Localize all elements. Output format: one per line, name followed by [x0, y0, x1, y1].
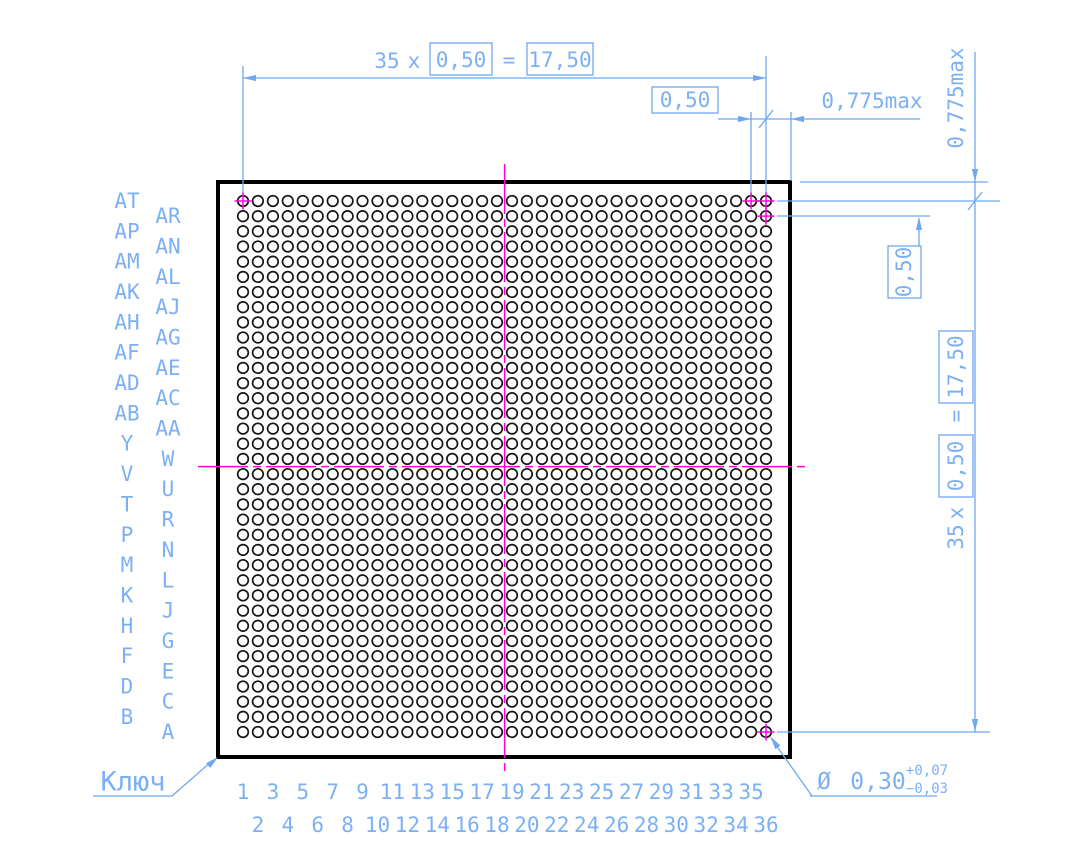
pad — [731, 272, 742, 283]
pad — [611, 605, 622, 616]
pad — [283, 575, 294, 586]
pad — [522, 423, 533, 434]
pad — [566, 438, 577, 449]
pad — [492, 590, 503, 601]
pad — [701, 393, 712, 404]
pad — [283, 272, 294, 283]
pad — [357, 226, 368, 237]
pad — [312, 287, 323, 298]
row-label: J — [162, 599, 175, 623]
pad — [731, 484, 742, 495]
pad — [312, 302, 323, 313]
pad — [596, 438, 607, 449]
row-label: AN — [155, 235, 180, 259]
pad — [357, 605, 368, 616]
pad — [671, 530, 682, 541]
pad — [238, 272, 249, 283]
pad — [462, 666, 473, 677]
pad — [641, 272, 652, 283]
pad — [701, 378, 712, 389]
col-label: 7 — [326, 780, 339, 804]
pad — [372, 696, 383, 707]
pad — [537, 393, 548, 404]
pad — [507, 651, 518, 662]
pad — [327, 727, 338, 738]
row-label: AE — [155, 356, 180, 380]
pad — [357, 256, 368, 267]
pad — [238, 226, 249, 237]
pad — [671, 408, 682, 419]
pad — [656, 302, 667, 313]
pad — [552, 226, 563, 237]
pad — [537, 256, 548, 267]
pad — [477, 727, 488, 738]
pad — [686, 651, 697, 662]
pad — [298, 256, 309, 267]
pad — [656, 272, 667, 283]
pad — [611, 499, 622, 510]
pad — [656, 590, 667, 601]
col-label: 1 — [237, 780, 250, 804]
pad — [507, 196, 518, 207]
pad — [298, 317, 309, 328]
pad — [312, 484, 323, 495]
pad — [566, 681, 577, 692]
pad — [253, 454, 264, 465]
pad — [761, 347, 772, 358]
pad — [626, 226, 637, 237]
pad — [746, 696, 757, 707]
pad — [387, 499, 398, 510]
pad — [507, 575, 518, 586]
pad — [432, 514, 443, 525]
pad — [656, 621, 667, 632]
pad — [417, 363, 428, 374]
h-gap-value: 0,50 — [660, 88, 711, 112]
pad — [566, 363, 577, 374]
pad — [656, 605, 667, 616]
pad — [312, 636, 323, 647]
pad — [701, 226, 712, 237]
pad — [731, 363, 742, 374]
pad — [507, 666, 518, 677]
pad — [626, 712, 637, 723]
pad — [283, 256, 294, 267]
col-label: 4 — [281, 813, 294, 837]
pad — [701, 287, 712, 298]
pad — [671, 241, 682, 252]
pad — [342, 287, 353, 298]
pad — [581, 332, 592, 343]
pad — [656, 499, 667, 510]
pad — [238, 484, 249, 495]
pad — [477, 438, 488, 449]
pad — [611, 621, 622, 632]
pad — [253, 696, 264, 707]
pad — [656, 696, 667, 707]
pad — [566, 196, 577, 207]
pad — [581, 363, 592, 374]
pad — [686, 347, 697, 358]
pad — [611, 287, 622, 298]
pad — [417, 408, 428, 419]
pad — [686, 454, 697, 465]
pad — [238, 408, 249, 419]
pad — [312, 454, 323, 465]
pad — [268, 454, 279, 465]
pad — [701, 499, 712, 510]
pad — [298, 530, 309, 541]
pad — [372, 378, 383, 389]
pad — [327, 666, 338, 677]
pad — [372, 423, 383, 434]
pad — [253, 408, 264, 419]
pad — [327, 681, 338, 692]
pad — [641, 605, 652, 616]
pad — [746, 226, 757, 237]
pad — [716, 636, 727, 647]
pad — [253, 590, 264, 601]
pad — [342, 651, 353, 662]
pad — [656, 332, 667, 343]
pad — [581, 438, 592, 449]
pad — [268, 530, 279, 541]
pad — [686, 332, 697, 343]
col-label: 12 — [395, 813, 420, 837]
pad — [761, 378, 772, 389]
pad — [656, 408, 667, 419]
pad — [432, 696, 443, 707]
pad — [522, 727, 533, 738]
pad — [671, 378, 682, 389]
pad — [402, 226, 413, 237]
pad — [552, 545, 563, 556]
pad — [596, 347, 607, 358]
pad — [626, 211, 637, 222]
pad — [268, 712, 279, 723]
pad — [447, 408, 458, 419]
pad — [746, 287, 757, 298]
pad — [596, 317, 607, 328]
pad — [761, 363, 772, 374]
pad — [537, 621, 548, 632]
pad — [312, 393, 323, 404]
pad — [432, 605, 443, 616]
pad — [626, 681, 637, 692]
col-label: 28 — [634, 813, 659, 837]
pad — [327, 621, 338, 632]
pad — [522, 575, 533, 586]
pad — [312, 499, 323, 510]
pad — [432, 256, 443, 267]
pad — [552, 393, 563, 404]
pad — [462, 575, 473, 586]
pad — [342, 347, 353, 358]
pad — [357, 196, 368, 207]
pad — [581, 636, 592, 647]
pad — [507, 621, 518, 632]
pad — [507, 256, 518, 267]
pad — [626, 332, 637, 343]
pad — [761, 545, 772, 556]
pad — [641, 712, 652, 723]
pad — [522, 560, 533, 571]
pad — [268, 302, 279, 313]
row-label: AC — [155, 386, 180, 410]
pad — [417, 469, 428, 480]
pad — [656, 287, 667, 298]
pad — [298, 469, 309, 480]
pad — [656, 530, 667, 541]
pad — [447, 666, 458, 677]
pad — [731, 514, 742, 525]
pad — [566, 317, 577, 328]
pad — [253, 196, 264, 207]
pad — [447, 696, 458, 707]
pad — [507, 226, 518, 237]
pad — [238, 211, 249, 222]
row-label: AT — [114, 189, 140, 213]
pad — [298, 636, 309, 647]
pad — [447, 621, 458, 632]
pad — [417, 317, 428, 328]
pad — [522, 530, 533, 541]
pad — [507, 332, 518, 343]
pad — [432, 499, 443, 510]
pad — [596, 727, 607, 738]
pad — [716, 256, 727, 267]
pad — [268, 287, 279, 298]
pad — [342, 636, 353, 647]
pad — [432, 211, 443, 222]
pad — [671, 681, 682, 692]
pad — [477, 347, 488, 358]
pad — [611, 514, 622, 525]
pad — [671, 636, 682, 647]
pad — [283, 317, 294, 328]
pad — [462, 651, 473, 662]
pad — [462, 621, 473, 632]
pad — [552, 727, 563, 738]
pad — [626, 438, 637, 449]
row-label: AJ — [155, 295, 180, 319]
pad — [327, 469, 338, 480]
pad — [268, 575, 279, 586]
pad — [253, 378, 264, 389]
pad — [402, 621, 413, 632]
pad — [268, 226, 279, 237]
pad — [537, 681, 548, 692]
pad — [626, 636, 637, 647]
pad — [761, 287, 772, 298]
pad — [327, 560, 338, 571]
pad — [701, 514, 712, 525]
pad — [477, 651, 488, 662]
pad — [626, 256, 637, 267]
pad — [731, 636, 742, 647]
pad — [596, 408, 607, 419]
pad — [566, 256, 577, 267]
pad — [387, 241, 398, 252]
col-label: 29 — [649, 780, 674, 804]
pad — [372, 651, 383, 662]
pad — [462, 514, 473, 525]
pad — [566, 530, 577, 541]
pad — [402, 317, 413, 328]
pad — [611, 363, 622, 374]
pad — [537, 363, 548, 374]
pad — [268, 484, 279, 495]
pad — [238, 302, 249, 313]
pad — [686, 317, 697, 328]
pad — [342, 226, 353, 237]
pad — [327, 196, 338, 207]
pad — [298, 454, 309, 465]
pad — [327, 317, 338, 328]
pad — [552, 438, 563, 449]
pad — [552, 302, 563, 313]
pad — [746, 560, 757, 571]
pad — [432, 423, 443, 434]
pad — [552, 454, 563, 465]
pad — [566, 712, 577, 723]
pad — [716, 666, 727, 677]
pad — [566, 393, 577, 404]
pad — [357, 272, 368, 283]
pad — [746, 590, 757, 601]
pad — [537, 605, 548, 616]
pad — [402, 681, 413, 692]
pad — [552, 363, 563, 374]
pad — [581, 469, 592, 480]
pad — [402, 393, 413, 404]
pad — [417, 393, 428, 404]
pad — [372, 666, 383, 677]
pad — [552, 347, 563, 358]
pad — [387, 681, 398, 692]
pad — [268, 590, 279, 601]
pad — [492, 727, 503, 738]
pad — [492, 241, 503, 252]
pad — [522, 256, 533, 267]
pad — [462, 302, 473, 313]
pad — [581, 590, 592, 601]
pad — [283, 590, 294, 601]
pad — [268, 605, 279, 616]
pad — [716, 575, 727, 586]
pad — [283, 666, 294, 677]
pad — [761, 605, 772, 616]
pad — [686, 211, 697, 222]
pad — [342, 712, 353, 723]
pad — [701, 727, 712, 738]
pad — [477, 636, 488, 647]
pad — [387, 363, 398, 374]
pad — [507, 469, 518, 480]
col-label: 36 — [753, 813, 778, 837]
pad — [641, 226, 652, 237]
pad — [402, 272, 413, 283]
pad — [686, 666, 697, 677]
pad — [312, 378, 323, 389]
pad — [611, 712, 622, 723]
pad — [357, 621, 368, 632]
pad — [283, 438, 294, 449]
pad — [327, 696, 338, 707]
pad — [492, 378, 503, 389]
pad — [253, 514, 264, 525]
pad — [312, 347, 323, 358]
pad — [402, 256, 413, 267]
pad — [507, 211, 518, 222]
pad — [447, 469, 458, 480]
pad — [432, 530, 443, 541]
pad — [477, 454, 488, 465]
pad — [432, 408, 443, 419]
pad — [298, 393, 309, 404]
pad — [477, 272, 488, 283]
pad — [641, 545, 652, 556]
pad — [283, 378, 294, 389]
pad — [656, 211, 667, 222]
pad — [581, 651, 592, 662]
pad — [447, 332, 458, 343]
pad — [566, 560, 577, 571]
pad — [581, 287, 592, 298]
pad — [268, 317, 279, 328]
pad — [238, 590, 249, 601]
pad — [552, 378, 563, 389]
pad — [581, 408, 592, 419]
pad — [701, 530, 712, 541]
pad — [312, 651, 323, 662]
pad — [656, 241, 667, 252]
pad — [716, 469, 727, 480]
pad — [761, 712, 772, 723]
pad — [432, 590, 443, 601]
pad — [238, 378, 249, 389]
pad — [611, 438, 622, 449]
pad — [283, 727, 294, 738]
pad — [327, 226, 338, 237]
pad — [298, 302, 309, 313]
pad — [492, 423, 503, 434]
pad — [417, 423, 428, 434]
pad — [671, 666, 682, 677]
pad — [357, 590, 368, 601]
pad — [507, 454, 518, 465]
pad — [238, 651, 249, 662]
pad — [492, 196, 503, 207]
pad — [507, 241, 518, 252]
col-label: 30 — [664, 813, 689, 837]
pad — [701, 666, 712, 677]
pad — [477, 560, 488, 571]
pad — [746, 575, 757, 586]
pad — [596, 605, 607, 616]
pad — [746, 469, 757, 480]
pad — [402, 484, 413, 495]
pad — [761, 454, 772, 465]
pad — [641, 378, 652, 389]
col-label: 11 — [380, 780, 405, 804]
pad — [537, 530, 548, 541]
pad — [656, 347, 667, 358]
pad — [357, 696, 368, 707]
pad — [716, 530, 727, 541]
pad — [268, 560, 279, 571]
pad — [283, 651, 294, 662]
